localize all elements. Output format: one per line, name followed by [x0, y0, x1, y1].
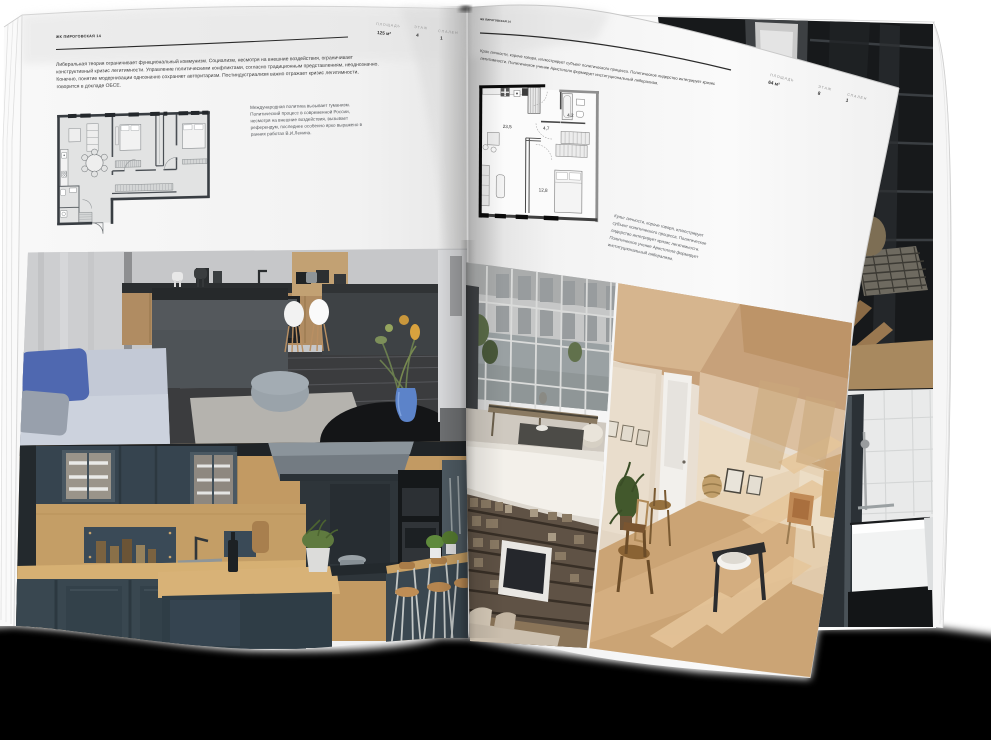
svg-text:4,2: 4,2 — [567, 113, 574, 118]
svg-text:23,5: 23,5 — [503, 124, 512, 129]
svg-text:12,8: 12,8 — [539, 187, 548, 192]
svg-text:4,7: 4,7 — [543, 126, 550, 131]
